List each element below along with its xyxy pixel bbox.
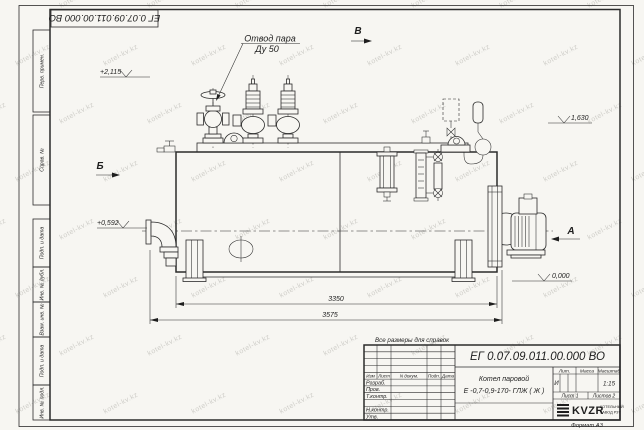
sheets-total: Листов 2 [592,394,616,400]
svg-text:1,630: 1,630 [571,115,589,122]
top-step [441,145,470,152]
company-logo: KVZR КОТЕЛЬНЫЙ ЗАВОД РЗТ [557,404,624,417]
dim-3350: 3350 [328,296,344,303]
level-column [377,147,397,201]
scale-label: Масштаб [598,369,621,375]
scale-value: 1:15 [603,381,616,388]
svg-text:0,000: 0,000 [552,273,570,280]
row-nkontr: Н.контр. [366,408,389,414]
elevation-1630: 1,630 [548,115,592,123]
pressure-gauge [464,102,491,164]
sheet-number: Лист 1 [560,394,578,400]
stamp-sprav-no: Справ. № [40,148,46,172]
product-name-2: Е -0,7-0,9-170- ГЛЖ ( Ж ) [464,388,545,395]
svg-text:А: А [566,226,574,237]
drawing-sheet: kotel-kv.kzkotel-kv.kzkotel-kv.kzkotel-k… [0,0,644,430]
svg-text:+2,115: +2,115 [100,69,121,76]
burner-motor [511,213,546,250]
safety-valve-2 [268,79,300,143]
stamp-perv-primen: Перв. примен. [40,54,46,88]
boiler-drawing: Отвод пара Ду 50 Б В А [96,26,592,282]
left-margin-stamps: Перв. примен. Справ. № Подп. и дата Инв.… [33,30,50,420]
stamp-inv-dubl: Инв. № дубл. [40,269,46,301]
platform-nozzle [422,137,430,143]
company-line-2: ЗАВОД РЗТ [600,411,621,415]
elevation-0592: +0,592 [97,220,147,228]
title-doc-number: ЕГ 0.07.09.011.00.000 ВО [470,351,605,363]
drawing-svg: ЕГ 0.07.09.011.00.000 ВО Перв. примен. С… [0,0,644,430]
callout-text-2: Ду 50 [254,44,278,54]
row-prov: Пров. [366,387,380,393]
product-name-1: Котел паровой [479,375,529,383]
stamp-inv-podl: Инв. № подл. [40,386,46,418]
svg-text:В: В [354,26,361,37]
boiler-shell [176,152,497,272]
stamp-vzam-inv: Взам. инв. № [40,303,46,335]
lifting-lug-right [448,137,465,145]
view-arrow-b: Б [96,161,120,178]
format-note: Формат А3 [571,423,603,429]
view-arrow-v: В [351,26,372,44]
doc-number-top: ЕГ 0.07.09.011.00.000 ВО [48,12,160,23]
col-list: Лист [377,374,390,379]
callout-text-1: Отвод пара [244,34,295,44]
burner [488,186,546,267]
svg-text:Б: Б [96,161,103,172]
elevation-0000: 0,000 [512,273,572,281]
view-arrow-a: А [551,226,580,242]
manhole [229,236,253,262]
mass-label: Масса [580,369,595,375]
row-razrab: Разраб. [366,380,386,386]
elevation-2115: +2,115 [100,69,150,77]
svg-text:+0,592: +0,592 [97,220,119,227]
company-line-1: КОТЕЛЬНЫЙ [600,405,624,409]
stamp-podp-data-2: Подп. и дата [40,345,46,378]
row-tkontr: Т.контр. [366,394,388,400]
reference-note: Все размеры для справок [375,337,450,344]
title-block: Все размеры для справок Изм Лист N докум… [364,337,624,429]
col-ndokum: N докум. [400,374,419,379]
water-gauge [414,149,443,201]
feed-elbow [146,220,178,266]
left-top-valve [157,141,175,152]
junction-box [519,198,537,214]
dim-3575: 3575 [322,312,338,319]
col-izm: Изм [366,374,375,379]
col-data: Дата [441,374,455,379]
siphon-loop [475,139,491,155]
row-utv: Утв. [365,414,378,420]
support-legs [183,240,475,282]
col-podp: Подп. [428,374,440,379]
stamp-podp-data-1: Подп. и дата [40,227,46,260]
lit-value: И [554,380,559,387]
lit-label: Лит. [558,369,570,375]
dashed-fitting [443,99,459,141]
steam-valve [197,90,229,143]
lifting-lug-left [224,133,244,143]
burner-plate [488,186,502,267]
